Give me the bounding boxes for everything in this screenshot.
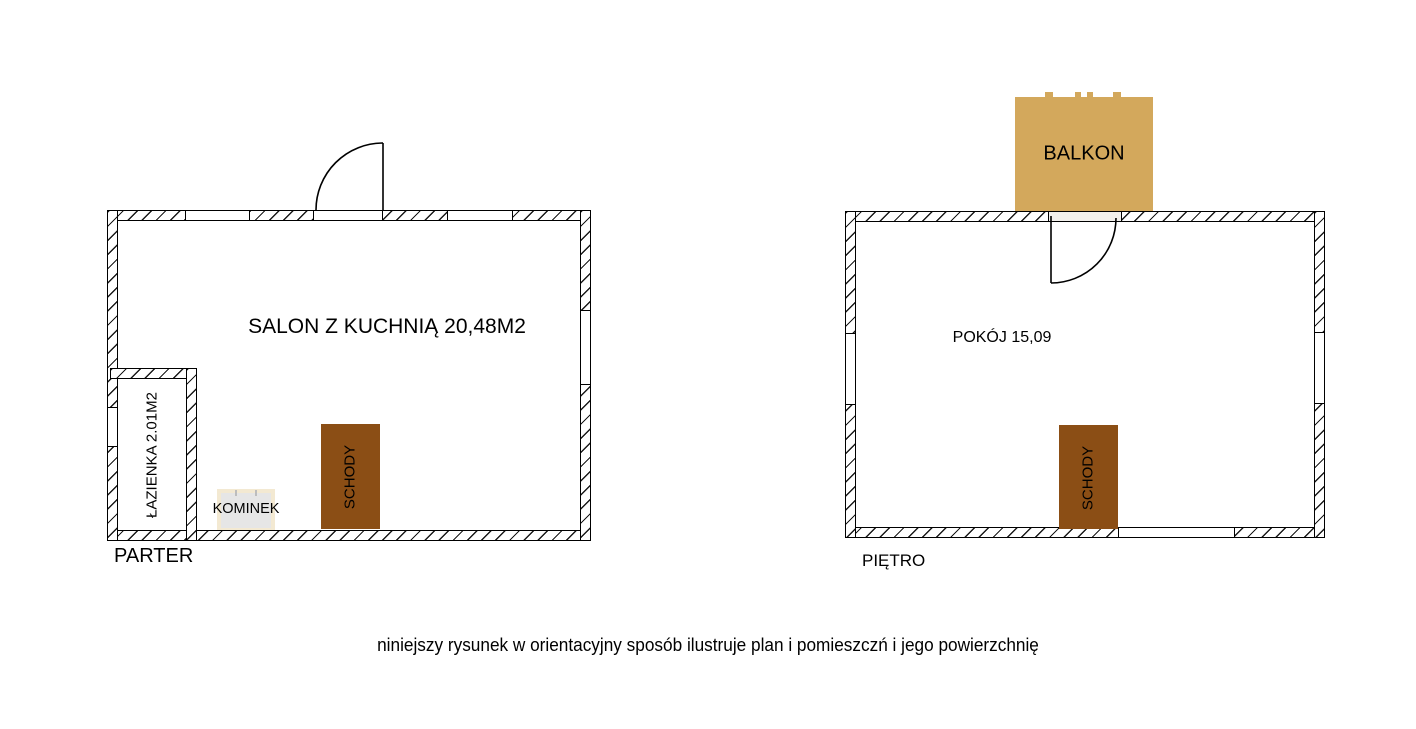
parter-window-top-right xyxy=(447,210,513,221)
pietro-room-label: POKÓJ 15,09 xyxy=(953,329,1052,347)
pietro-stairs-label: SCHODY xyxy=(1080,446,1097,510)
parter-room-label: SALON Z KUCHNIĄ 20,48M2 xyxy=(248,315,526,339)
pietro-door-swing-icon xyxy=(1047,214,1123,290)
parter-window-top-left xyxy=(185,210,250,221)
pietro-floor-label: PIĘTRO xyxy=(862,551,925,571)
balcony-post-icon xyxy=(1087,92,1093,98)
parter-window-left-bath xyxy=(107,407,118,447)
parter-floor-label: PARTER xyxy=(114,545,193,568)
bathroom-wall-top xyxy=(110,368,197,379)
parter-door-swing-icon xyxy=(312,140,386,212)
floor-plan-canvas: ŁAZIENKA 2.01M2 KOMINEK SCHODY SALON Z K… xyxy=(0,0,1416,729)
balcony: BALKON xyxy=(1015,97,1153,211)
bathroom-label: ŁAZIENKA 2.01M2 xyxy=(144,392,161,518)
fireplace-tick-icon xyxy=(255,490,257,496)
drawing-caption: niniejszy rysunek w orientacyjny sposób … xyxy=(50,634,1367,656)
balcony-post-icon xyxy=(1075,92,1081,98)
parter-wall-bottom xyxy=(107,530,591,541)
pietro-window-bottom xyxy=(1118,527,1235,538)
pietro-window-left xyxy=(845,333,856,405)
fireplace-tick-icon xyxy=(235,490,237,496)
fireplace-label: KOMINEK xyxy=(213,501,280,517)
pietro-window-right xyxy=(1314,332,1325,404)
bathroom-wall-right xyxy=(186,368,197,541)
balcony-post-icon xyxy=(1045,92,1053,98)
balcony-label: BALKON xyxy=(1043,143,1124,166)
parter-window-right xyxy=(580,310,591,385)
parter-stairs-label: SCHODY xyxy=(342,445,359,509)
balcony-post-icon xyxy=(1113,92,1121,98)
